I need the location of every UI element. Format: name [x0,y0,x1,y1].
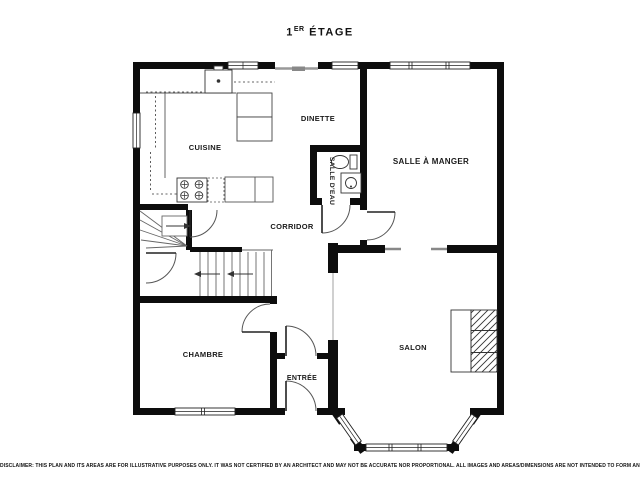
window-kitchen-top [228,62,258,69]
stove-icon [177,178,207,202]
counter-edges [140,93,236,178]
label-living-room: SALON [399,343,427,352]
window-bay-left [337,414,362,445]
label-corridor: CORRIDOR [270,222,314,231]
straight-stairs [200,250,273,296]
kitchen-fixtures [140,66,275,202]
fireplace [451,310,497,372]
bathroom-sink-icon [341,173,361,193]
door-bedroom [242,304,270,332]
label-dining-room: SALLE À MANGER [393,157,469,166]
window-dining-top [390,62,470,69]
kitchen-peninsula [225,177,273,202]
kitchen-cabinets [237,93,272,141]
door-kitchen [190,210,217,237]
kitchen-sink-icon [205,66,232,93]
label-bathroom: SALLE D'EAU [328,157,335,205]
door-hall-entrance [286,326,316,356]
label-bedroom: CHAMBRE [183,350,223,359]
window-bay-bottom [366,444,447,451]
label-entrance: ENTRÉE [287,373,317,382]
label-dinette: DINETTE [301,114,335,123]
window-dinette-top [332,62,358,69]
floor-plan-svg: CUISINE DINETTE SALLE À MANGER SALLE D'E… [0,0,640,480]
dishwasher-icon [208,178,224,202]
opening-lines [333,249,447,340]
disclaimer-text: DISCLAIMER: THIS PLAN AND ITS AREAS ARE … [0,463,640,469]
window-bedroom-bottom [175,408,235,415]
door-bathroom [322,205,350,233]
stair-down-arrows [194,271,253,277]
door-stair-closet [146,253,176,283]
patio-door [275,67,318,72]
label-kitchen: CUISINE [189,143,222,152]
window-kitchen-left [133,113,140,148]
door-corridor-dining [367,212,395,240]
door-front [286,381,316,411]
window-bay-right [453,414,478,445]
floor-plan-page: 1ER ÉTAGE [0,0,640,480]
